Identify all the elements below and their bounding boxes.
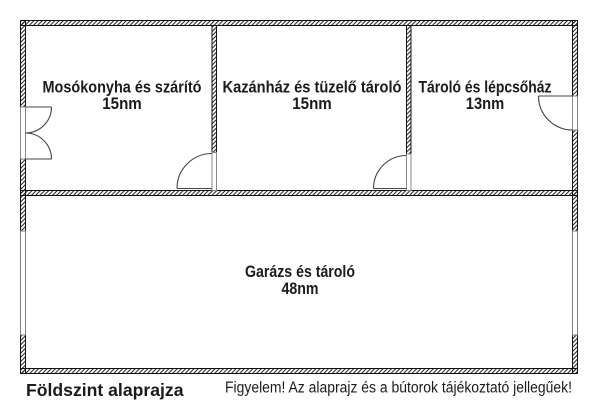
svg-text:Figyelem! Az alaprajz és a bút: Figyelem! Az alaprajz és a bútorok tájék… — [225, 380, 572, 397]
svg-text:Tároló és lépcsőház: Tároló és lépcsőház — [419, 79, 552, 97]
svg-text:Garázs és tároló: Garázs és tároló — [245, 263, 355, 281]
svg-text:Mosókonyha és szárító: Mosókonyha és szárító — [43, 79, 202, 97]
svg-text:15nm: 15nm — [292, 95, 332, 113]
svg-text:Földszint alaprajza: Földszint alaprajza — [26, 380, 184, 400]
svg-text:15nm: 15nm — [102, 95, 142, 113]
svg-text:Kazánház és tüzelő tároló: Kazánház és tüzelő tároló — [223, 79, 402, 97]
svg-text:48nm: 48nm — [282, 280, 319, 298]
svg-text:13nm: 13nm — [466, 95, 505, 113]
